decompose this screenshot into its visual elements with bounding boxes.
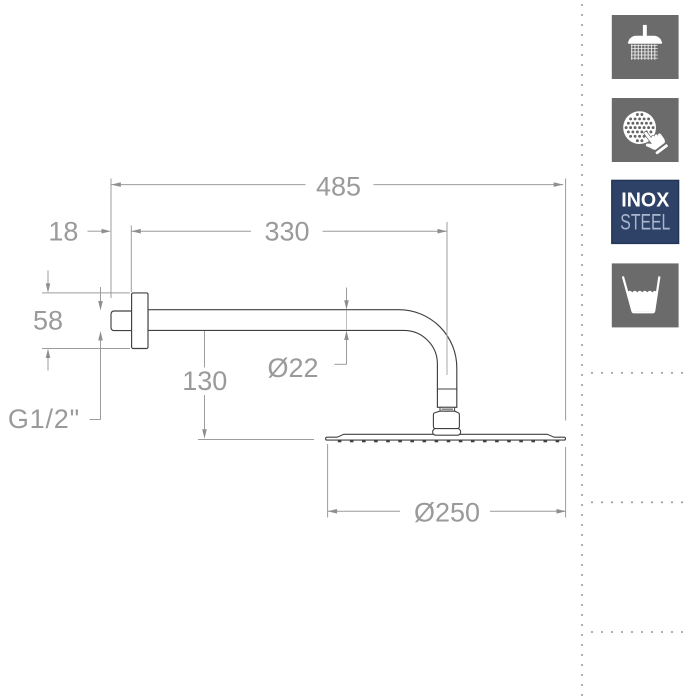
svg-text:18: 18 xyxy=(48,217,78,247)
svg-text:330: 330 xyxy=(264,217,309,247)
svg-text:130: 130 xyxy=(182,366,227,396)
svg-text:Ø250: Ø250 xyxy=(414,498,480,528)
svg-text:STEEL: STEEL xyxy=(620,210,670,235)
svg-text:58: 58 xyxy=(33,306,63,336)
svg-text:485: 485 xyxy=(316,172,361,202)
svg-text:G1/2": G1/2" xyxy=(8,404,80,434)
svg-text:INOX: INOX xyxy=(621,188,669,211)
svg-text:Ø22: Ø22 xyxy=(267,353,318,383)
